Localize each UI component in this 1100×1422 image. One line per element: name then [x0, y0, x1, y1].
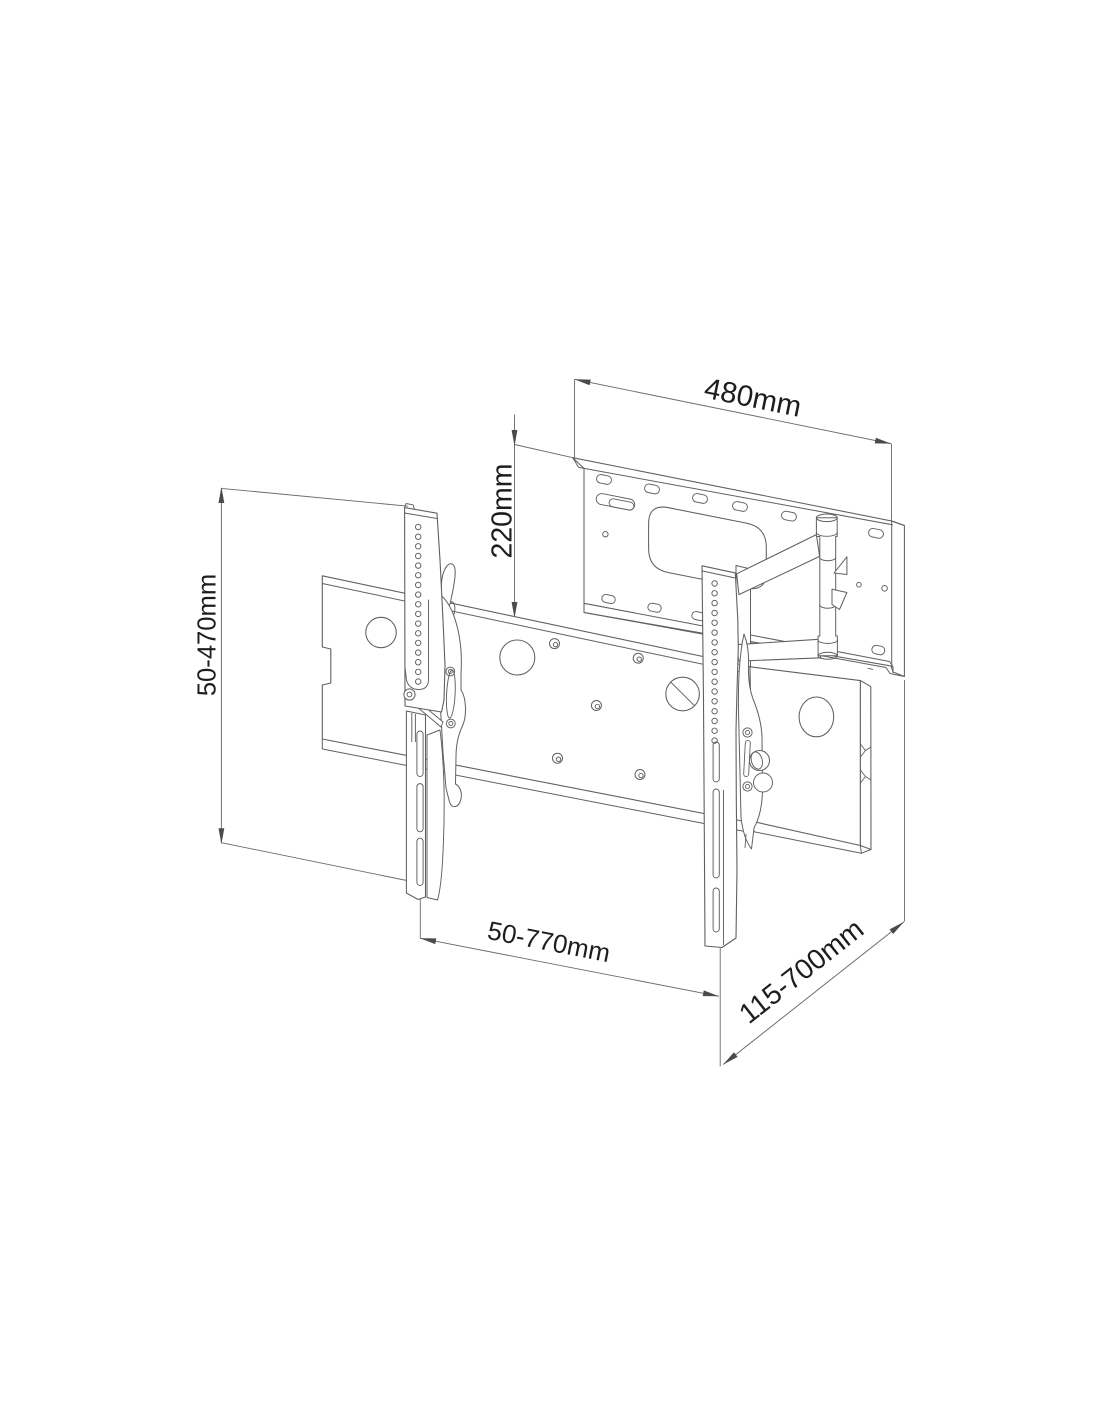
svg-text:220mm: 220mm	[486, 463, 518, 558]
svg-text:50-470mm: 50-470mm	[193, 574, 221, 696]
